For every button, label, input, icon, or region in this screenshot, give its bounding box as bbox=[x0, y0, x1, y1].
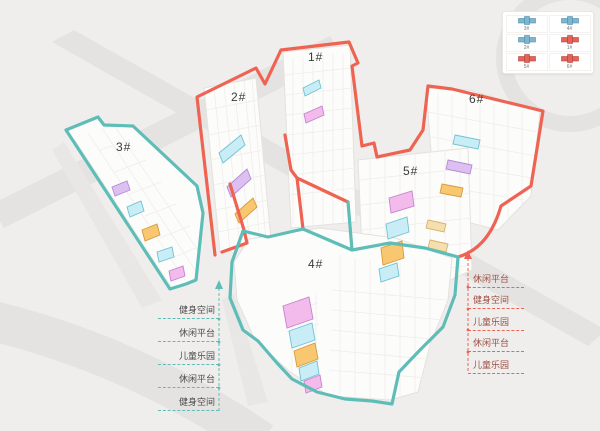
left-leader-arrow-icon bbox=[215, 280, 223, 289]
amenity-label: 休闲平台 bbox=[179, 326, 215, 339]
legend-label: 4# bbox=[567, 27, 573, 32]
amenity-row: 休闲平台 bbox=[468, 331, 524, 353]
tower-plan-icon bbox=[561, 54, 579, 64]
building-label-4: 4# bbox=[308, 257, 323, 271]
amenity-label: 儿童乐园 bbox=[179, 349, 215, 362]
tower-plan-icon bbox=[561, 35, 579, 45]
amenity-row: 休闲平台 bbox=[468, 266, 524, 288]
amenity-row: 健身空间 bbox=[158, 296, 219, 319]
amenity-row: 儿童乐园 bbox=[468, 352, 524, 374]
tower-plan-icon bbox=[518, 16, 536, 26]
legend-label: 3# bbox=[524, 27, 530, 32]
legend-label: 6# bbox=[567, 65, 573, 70]
tower-plan-icon bbox=[518, 54, 536, 64]
amenity-label: 休闲平台 bbox=[179, 372, 215, 385]
right-annotation-panel: 休闲平台 健身空间 儿童乐园 休闲平台 儿童乐园 bbox=[468, 266, 524, 374]
amenity-label: 健身空间 bbox=[179, 303, 215, 316]
amenity-label: 休闲平台 bbox=[473, 272, 509, 285]
legend-label: 2# bbox=[524, 46, 530, 51]
amenity-row: 休闲平台 bbox=[158, 319, 219, 342]
amenity-label: 健身空间 bbox=[473, 293, 509, 306]
left-annotation-panel: 健身空间 休闲平台 儿童乐园 休闲平台 健身空间 bbox=[158, 296, 219, 411]
building-label-6: 6# bbox=[469, 92, 484, 106]
amenity-label: 儿童乐园 bbox=[473, 358, 509, 371]
amenity-label: 健身空间 bbox=[179, 395, 215, 408]
amenity-row: 儿童乐园 bbox=[158, 342, 219, 365]
building-label-3: 3# bbox=[116, 140, 131, 154]
tower-plan-icon bbox=[518, 35, 536, 45]
legend-item: 1# bbox=[549, 34, 591, 52]
legend-item: 3# bbox=[506, 15, 548, 33]
building-label-2: 2# bbox=[231, 90, 246, 104]
legend-label: 1# bbox=[567, 46, 573, 51]
amenity-row: 健身空间 bbox=[158, 388, 219, 411]
road-curve bbox=[0, 318, 262, 431]
amenity-row: 儿童乐园 bbox=[468, 309, 524, 331]
tower-type-legend: 3# 4# 2# 1# 5# 6# bbox=[502, 11, 594, 74]
site-plan-screenshot: 1# 2# 3# 4# 5# 6# 健身空间 休闲平台 儿童乐园 休闲平台 健身… bbox=[0, 0, 600, 431]
legend-label: 5# bbox=[524, 65, 530, 70]
legend-item: 6# bbox=[549, 53, 591, 71]
tower-plan-icon bbox=[561, 16, 579, 26]
amenity-label: 儿童乐园 bbox=[473, 315, 509, 328]
amenity-row: 休闲平台 bbox=[158, 365, 219, 388]
building-label-1: 1# bbox=[308, 50, 323, 64]
building-mass-4 bbox=[234, 228, 452, 400]
legend-item: 4# bbox=[549, 15, 591, 33]
legend-item: 5# bbox=[506, 53, 548, 71]
amenity-row: 健身空间 bbox=[468, 288, 524, 310]
building-label-5: 5# bbox=[403, 164, 418, 178]
amenity-label: 休闲平台 bbox=[473, 336, 509, 349]
legend-item: 2# bbox=[506, 34, 548, 52]
